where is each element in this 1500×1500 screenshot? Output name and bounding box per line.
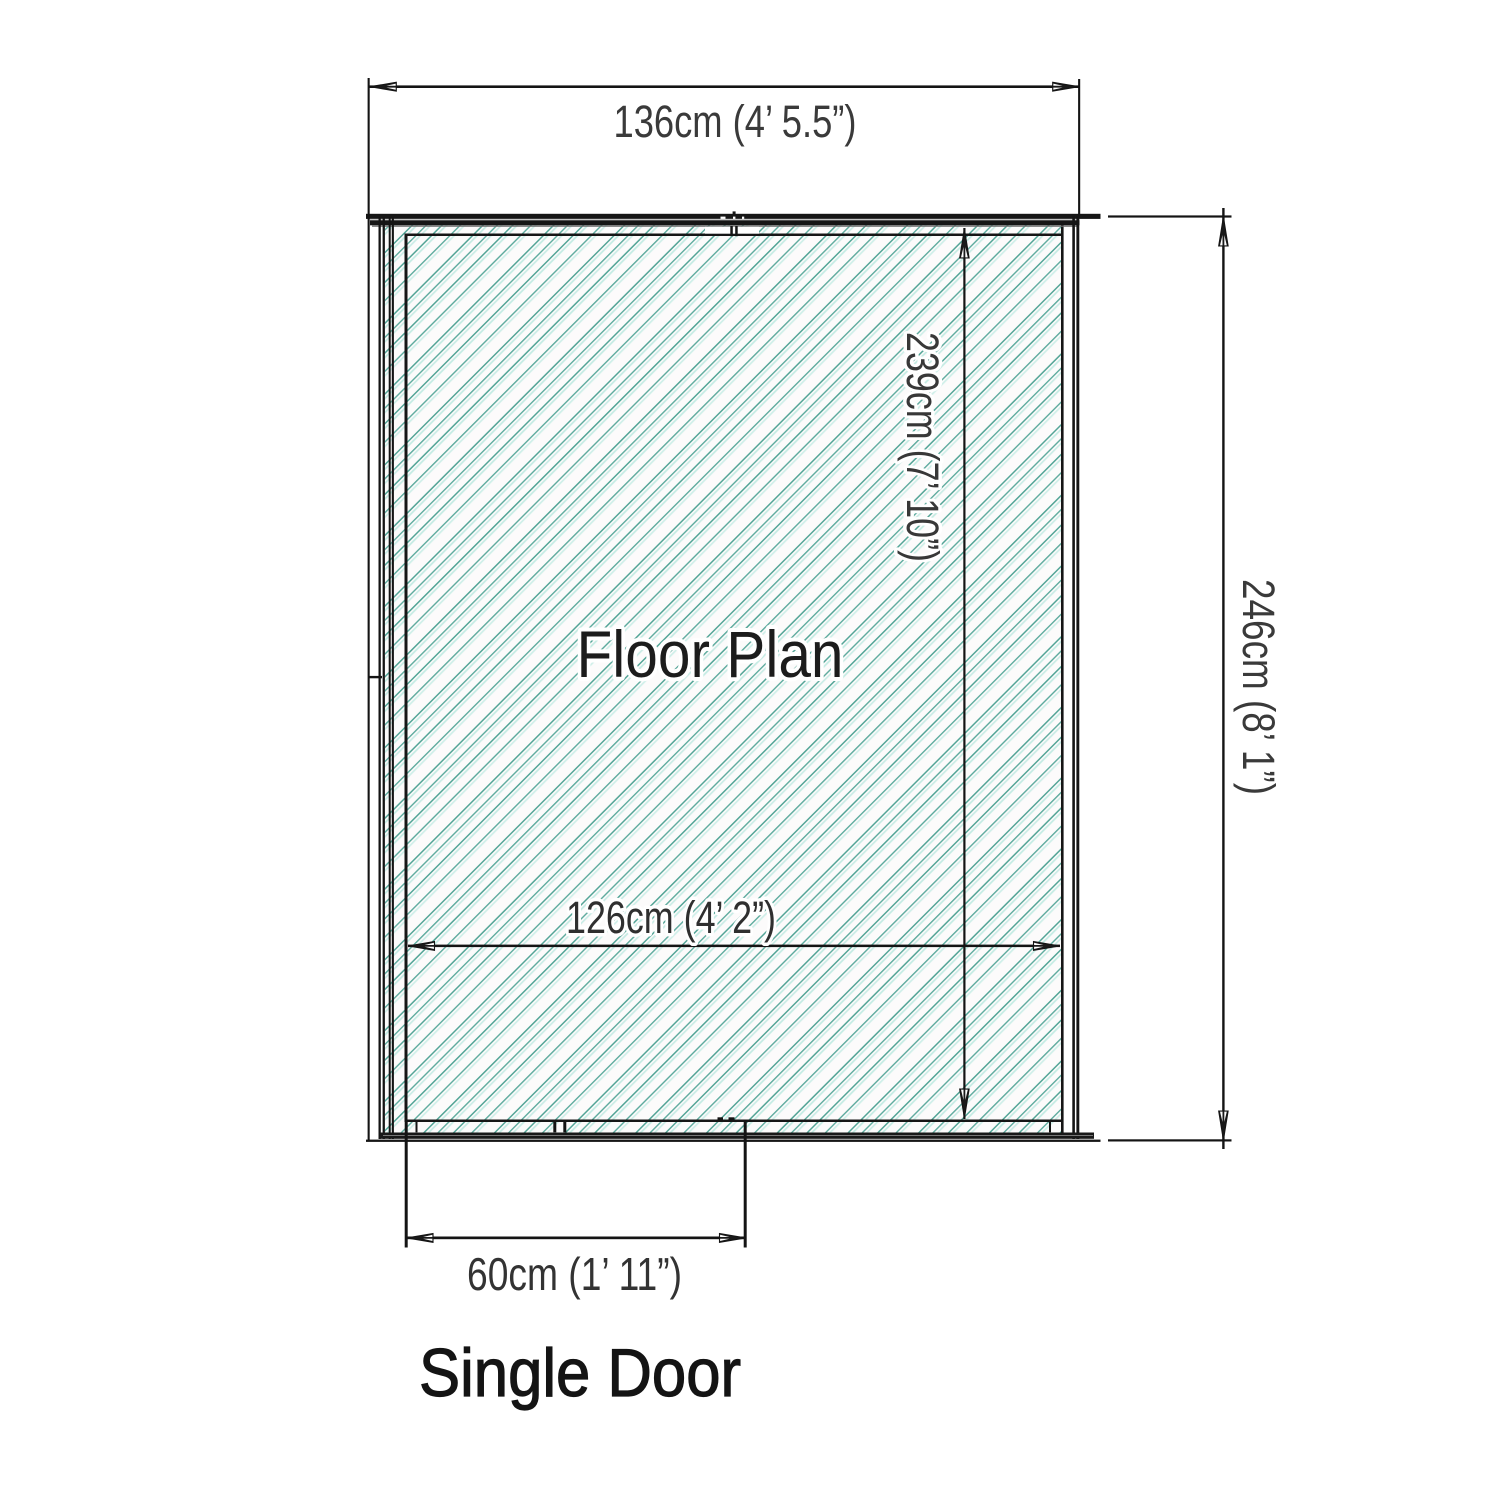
svg-text:246cm (8’ 1”): 246cm (8’ 1”) bbox=[1233, 579, 1284, 795]
svg-text:239cm (7’ 10”): 239cm (7’ 10”) bbox=[897, 332, 948, 562]
svg-text:136cm (4’ 5.5”): 136cm (4’ 5.5”) bbox=[614, 96, 857, 147]
svg-text:Single Door: Single Door bbox=[419, 1335, 741, 1411]
svg-text:126cm (4’ 2”): 126cm (4’ 2”) bbox=[566, 892, 776, 943]
svg-text:Floor Plan: Floor Plan bbox=[577, 617, 844, 691]
svg-text:60cm (1’ 11”): 60cm (1’ 11”) bbox=[467, 1248, 682, 1300]
